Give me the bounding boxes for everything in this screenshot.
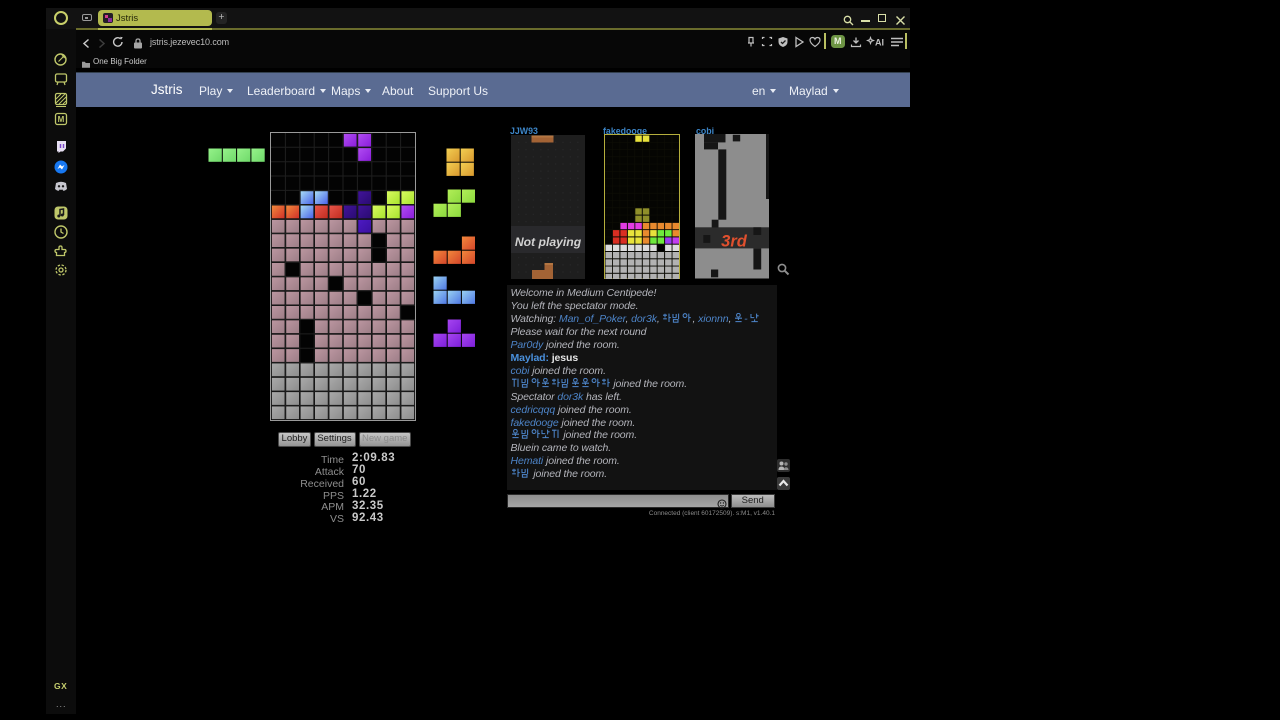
svg-text:M: M bbox=[58, 115, 65, 124]
svg-text:Not playing: Not playing bbox=[514, 235, 581, 249]
svg-text:3rd: 3rd bbox=[721, 233, 748, 251]
svg-text:AI: AI bbox=[875, 38, 884, 48]
